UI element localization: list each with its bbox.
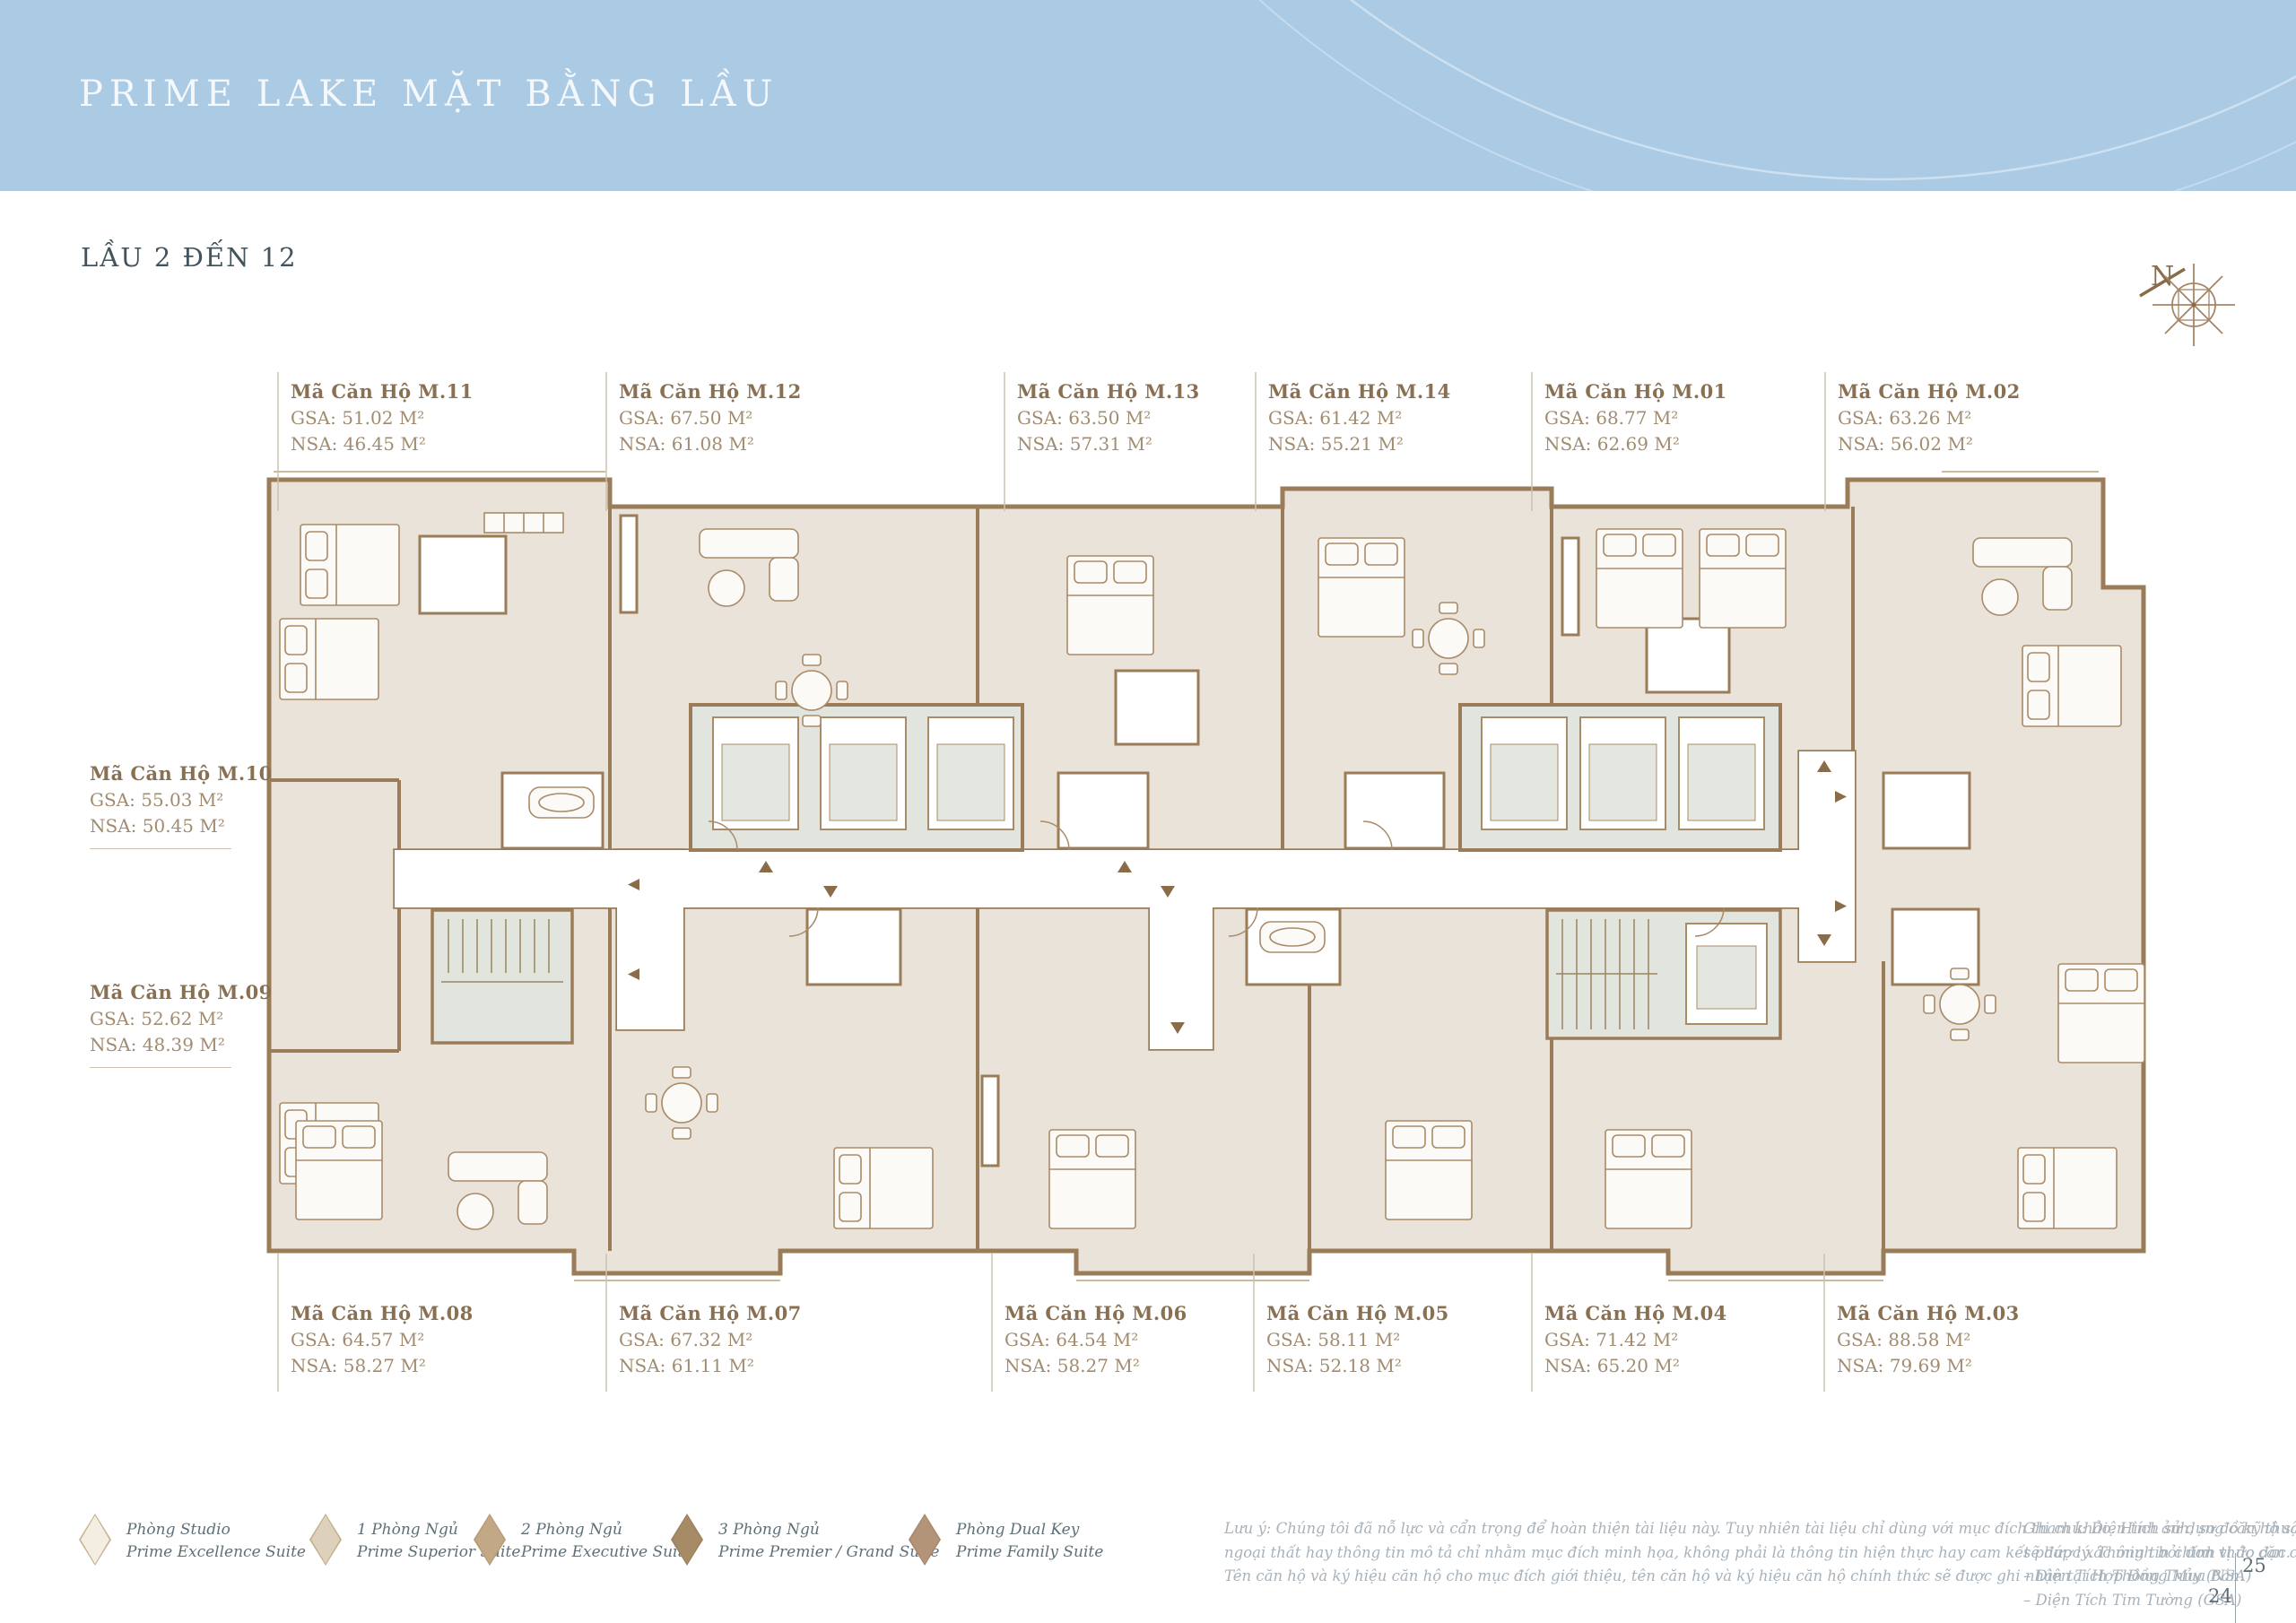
- furniture: [280, 513, 2144, 1229]
- page-title: PRIME LAKE MẶT BẰNG LẦU: [79, 74, 778, 115]
- corridor-arrows: [628, 760, 1847, 1034]
- corridor: [395, 751, 1855, 1049]
- label-leader-lines: [278, 372, 1825, 1392]
- unit-label-m01: Mã Căn Hộ M.01 GSA: 68.77 M² NSA: 62.69 …: [1544, 380, 1727, 455]
- two-bedroom-diamond-icon: [474, 1514, 506, 1566]
- unit-label-m03: Mã Căn Hộ M.03 GSA: 88.58 M² NSA: 79.69 …: [1837, 1302, 2020, 1376]
- unit-label-m07: Mã Căn Hộ M.07 GSA: 67.32 M² NSA: 61.11 …: [619, 1302, 802, 1376]
- legend-item-dual-key: Phòng Dual Key Prime Family Suite: [909, 1514, 1103, 1566]
- legend-item-3br: 3 Phòng Ngủ Prime Premier / Grand Suite: [671, 1514, 940, 1566]
- unit-label-m11: Mã Căn Hộ M.11 GSA: 51.02 M² NSA: 46.45 …: [291, 380, 474, 455]
- unit-label-m12: Mã Căn Hộ M.12 GSA: 67.50 M² NSA: 61.08 …: [619, 380, 802, 455]
- elevator-core-left: [691, 705, 1022, 850]
- elevator-core-right: [1460, 705, 1780, 850]
- unit-label-m13: Mã Căn Hộ M.13 GSA: 63.50 M² NSA: 57.31 …: [1017, 380, 1200, 455]
- header-banner: PRIME LAKE MẶT BẰNG LẦU: [0, 0, 2296, 191]
- building-footprint: [269, 480, 2144, 1273]
- compass-icon: N: [2140, 261, 2235, 346]
- dual-key-diamond-icon: [909, 1514, 941, 1566]
- brochure-page: PRIME LAKE MẶT BẰNG LẦU LẦU 2 ĐẾN 12: [0, 0, 2296, 1623]
- studio-diamond-icon: [79, 1514, 111, 1566]
- label-rule-m09: [90, 1067, 231, 1068]
- page-number-divider: [2235, 1553, 2236, 1623]
- compass-north-label: N: [2151, 261, 2174, 292]
- unit-label-m14: Mã Căn Hộ M.14 GSA: 61.42 M² NSA: 55.21 …: [1268, 380, 1451, 455]
- corridor-walls: [395, 751, 1855, 1049]
- door-arcs: [709, 821, 1724, 936]
- unit-label-m04: Mã Căn Hộ M.04 GSA: 71.42 M² NSA: 65.20 …: [1544, 1302, 1727, 1376]
- balcony-lines: [274, 472, 2099, 1280]
- three-bedroom-diamond-icon: [671, 1514, 703, 1566]
- unit-label-m08: Mã Căn Hộ M.08 GSA: 64.57 M² NSA: 58.27 …: [291, 1302, 474, 1376]
- unit-label-m02: Mã Căn Hộ M.02 GSA: 63.26 M² NSA: 56.02 …: [1838, 380, 2021, 455]
- unit-label-m09: Mã Căn Hộ M.09 GSA: 52.62 M² NSA: 48.39 …: [90, 981, 273, 1055]
- legend-item-studio: Phòng Studio Prime Excellence Suite: [79, 1514, 306, 1566]
- unit-label-m10: Mã Căn Hộ M.10 GSA: 55.03 M² NSA: 50.45 …: [90, 762, 273, 837]
- partition-walls: [269, 489, 1883, 1251]
- legend-item-2br: 2 Phòng Ngủ Prime Executive Suite: [474, 1514, 692, 1566]
- floor-plan: N: [0, 0, 2296, 1623]
- unit-label-m06: Mã Căn Hộ M.06 GSA: 64.54 M² NSA: 58.27 …: [1004, 1302, 1187, 1376]
- page-number-right: 25: [2242, 1555, 2266, 1576]
- page-number-left: 24: [2208, 1585, 2232, 1607]
- label-rule-m10: [90, 848, 231, 849]
- floor-range-subtitle: LẦU 2 ĐẾN 12: [81, 242, 298, 273]
- unit-label-m05: Mã Căn Hộ M.05 GSA: 58.11 M² NSA: 52.18 …: [1266, 1302, 1449, 1376]
- wet-rooms: [420, 516, 1979, 1166]
- one-bedroom-diamond-icon: [309, 1514, 342, 1566]
- stair-core-left: [432, 910, 572, 1043]
- stair-core-right: [1547, 910, 1780, 1038]
